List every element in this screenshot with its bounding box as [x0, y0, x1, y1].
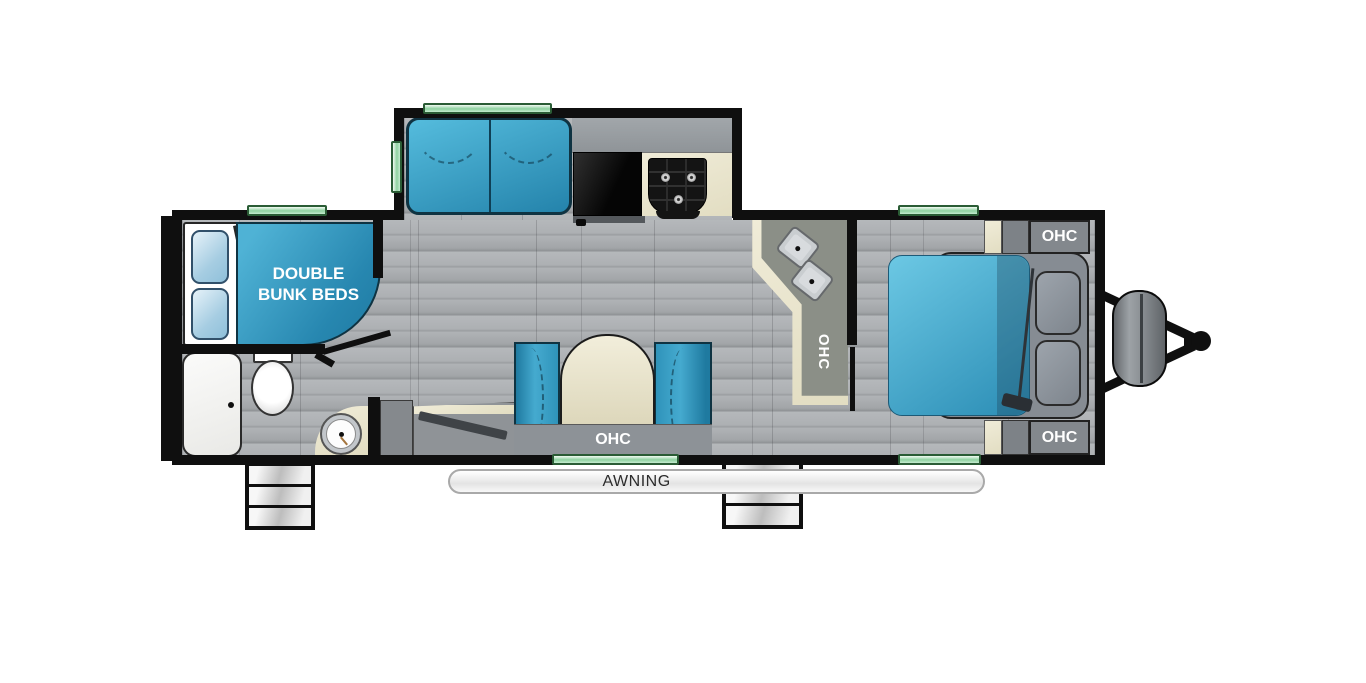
entry-steps-left	[245, 462, 315, 530]
nightstand-top-cream	[984, 220, 1002, 254]
nightstand-top	[1002, 220, 1029, 254]
window-dinette-bottom	[552, 454, 679, 465]
sofa	[406, 117, 572, 215]
bunk-partition-wall	[373, 218, 383, 278]
entry-cabinet	[380, 400, 413, 457]
cooktop-front-bulge	[656, 211, 700, 219]
awning-label: AWNING	[602, 473, 670, 491]
window-bedroom-top	[898, 205, 979, 216]
sofa-seam	[489, 120, 491, 212]
nightstand-bottom-cream	[984, 420, 1002, 455]
bunk-label: DOUBLE BUNK BEDS	[258, 263, 359, 306]
window-slideout-top	[423, 103, 552, 114]
bedroom-pocket-door	[850, 347, 855, 411]
bed-ohc-bottom: OHC	[1029, 420, 1090, 455]
wall-right	[1095, 210, 1105, 465]
bed-ohc-top: OHC	[1029, 220, 1090, 254]
bunk-label-line2: BUNK BEDS	[258, 284, 359, 305]
window-bunk-top	[247, 205, 327, 216]
sofa-cushion-curve	[493, 86, 565, 164]
shower-door-knob	[228, 402, 234, 408]
window-bedroom-bottom	[898, 454, 981, 465]
propane-tank-divider	[1140, 294, 1143, 383]
step-tread	[249, 508, 311, 526]
dinette-table	[560, 334, 655, 424]
dinette-ohc-cabinet: OHC	[514, 424, 712, 455]
refrigerator-foot	[576, 219, 586, 226]
kitchen-counter-back	[572, 117, 733, 153]
slideout-wall-right	[732, 108, 742, 218]
bedroom-wall	[847, 218, 857, 345]
counter-ohc-label: OHC	[812, 330, 832, 374]
tv-console	[413, 402, 517, 457]
tv-screen	[418, 411, 508, 440]
bath-entry-wall	[368, 397, 380, 459]
bed-mattress	[888, 255, 1030, 416]
step-tread	[249, 466, 311, 487]
step-tread	[249, 487, 311, 508]
burner-cap	[687, 173, 696, 182]
wall-left	[172, 210, 182, 465]
rv-floorplan: AWNING DOUBLE BUNK BEDS OHC	[0, 0, 1366, 683]
sofa-cushion-curve	[413, 86, 485, 164]
window-slideout-side	[391, 141, 402, 193]
awning-bar: AWNING	[448, 469, 985, 494]
shower	[182, 352, 242, 457]
rear-bumper	[161, 216, 172, 461]
bath-partition-wall	[172, 344, 325, 354]
dinette-ohc-label: OHC	[595, 431, 631, 449]
burner-cap	[674, 195, 683, 204]
bed-pillow-top	[1035, 271, 1081, 335]
bed-pillow-bottom	[1035, 340, 1081, 406]
toilet-bowl	[251, 360, 294, 416]
bed-ohc-bottom-label: OHC	[1042, 429, 1078, 447]
cooktop-stove	[648, 158, 707, 214]
bunk-pillow-top	[191, 230, 229, 284]
step-tread	[726, 506, 799, 525]
bunk-pillow-bottom	[191, 288, 229, 340]
bunk-label-line1: DOUBLE	[258, 263, 359, 284]
burner-cap	[661, 173, 670, 182]
nightstand-bottom	[1002, 420, 1029, 455]
kitchen-sink-counter: OHC	[745, 219, 848, 405]
refrigerator	[573, 152, 642, 216]
bed-ohc-top-label: OHC	[1042, 228, 1078, 246]
propane-tank	[1112, 290, 1167, 387]
